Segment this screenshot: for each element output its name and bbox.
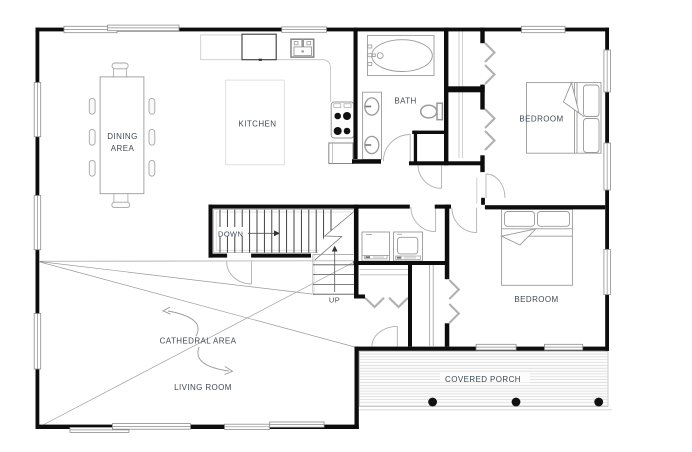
svg-text:AREA: AREA [111,144,135,153]
svg-text:BATH: BATH [394,97,416,106]
svg-text:BEDROOM: BEDROOM [519,115,563,124]
svg-text:UP: UP [329,296,340,305]
svg-text:DOWN: DOWN [218,229,243,238]
svg-text:DINING: DINING [107,132,137,141]
svg-text:COVERED PORCH: COVERED PORCH [445,375,521,384]
svg-text:LIVING ROOM: LIVING ROOM [174,383,232,392]
svg-text:CATHEDRAL AREA: CATHEDRAL AREA [160,337,237,346]
svg-text:BEDROOM: BEDROOM [514,295,558,304]
svg-text:KITCHEN: KITCHEN [239,120,277,129]
